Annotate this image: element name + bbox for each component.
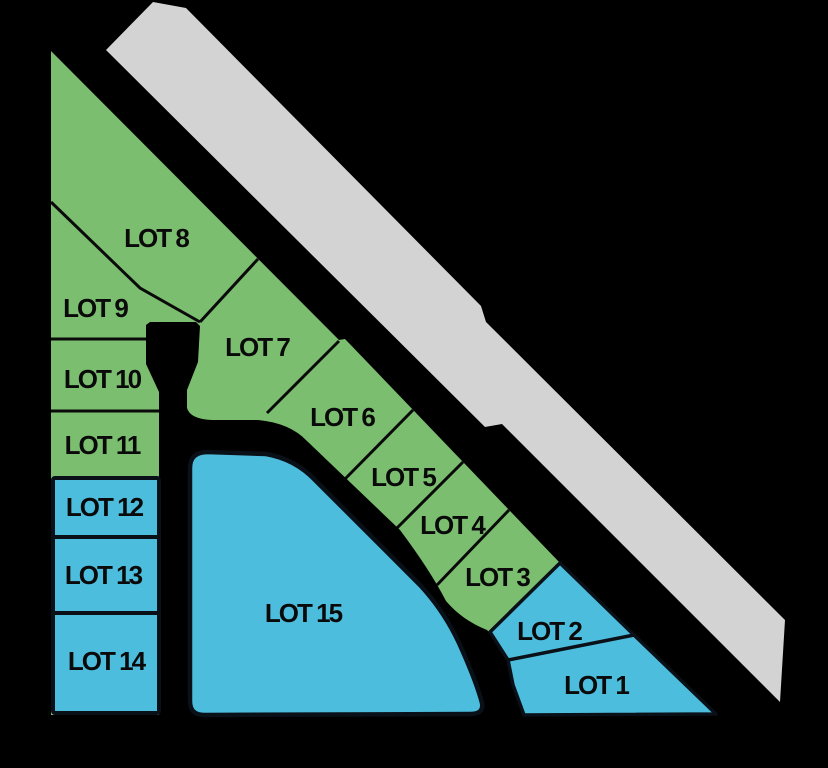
svg-text:LOT 13: LOT 13: [65, 560, 143, 590]
svg-text:LOT 11: LOT 11: [65, 430, 141, 460]
svg-text:LOT 1: LOT 1: [564, 670, 629, 700]
svg-text:LOT 7: LOT 7: [225, 332, 290, 362]
svg-text:LOT 12: LOT 12: [66, 492, 144, 522]
svg-text:LOT 2: LOT 2: [517, 616, 582, 646]
svg-text:LOT 10: LOT 10: [64, 364, 142, 394]
svg-text:LOT 5: LOT 5: [371, 462, 436, 492]
svg-text:LOT 8: LOT 8: [124, 223, 189, 253]
svg-text:LOT 14: LOT 14: [68, 646, 147, 676]
svg-text:LOT 6: LOT 6: [310, 402, 375, 432]
svg-text:LOT 3: LOT 3: [465, 562, 530, 592]
svg-text:LOT 15: LOT 15: [265, 598, 343, 628]
svg-text:LOT 4: LOT 4: [420, 510, 486, 540]
svg-text:LOT 9: LOT 9: [63, 293, 128, 323]
